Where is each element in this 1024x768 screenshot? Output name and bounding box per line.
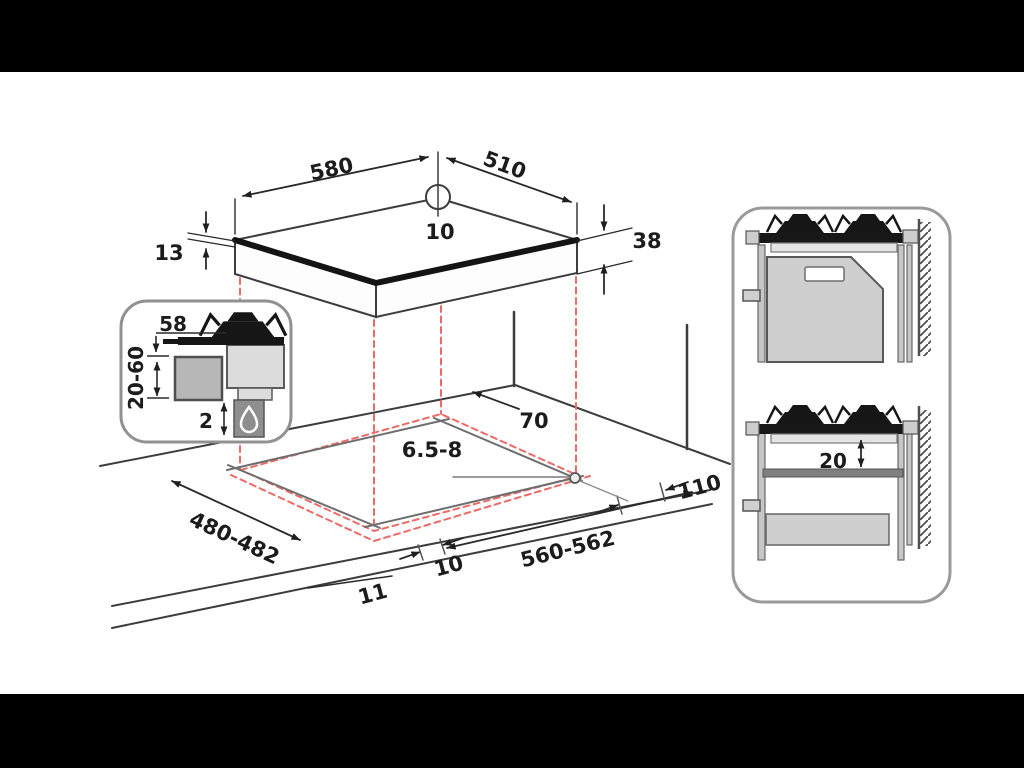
hob-underside-panel <box>771 243 897 252</box>
hob-height-label: 38 <box>632 229 661 253</box>
pipe-hole-marker <box>570 473 580 483</box>
clamp-left <box>746 231 759 244</box>
installation-diagram: 70 6.5-8 110 480-482 560-562 10 11 5 <box>0 0 1024 768</box>
gas-pipe-stub <box>743 290 760 301</box>
right-rail-2 <box>907 245 912 362</box>
wall-hatching-top <box>919 222 931 356</box>
installation-side-views: 20 <box>733 208 950 602</box>
inset-top-label: 58 <box>159 312 187 336</box>
inset-hob-surface <box>178 337 284 345</box>
inset-gap-label: 2 <box>199 409 213 433</box>
inset-cabinet-box <box>175 357 222 400</box>
clamp-right <box>903 421 918 434</box>
clamp-right <box>903 230 918 243</box>
inset-burner-body <box>227 345 284 388</box>
inset-hob-bar <box>163 339 178 344</box>
hole-diameter-label: 6.5-8 <box>402 438 463 462</box>
wall-hatching-bottom <box>919 410 931 546</box>
hob-edge-thickness-label: 13 <box>154 241 183 265</box>
rear-clearance-label: 70 <box>519 409 548 433</box>
hob-center-offset-label: 10 <box>425 220 454 244</box>
gas-pipe-stub <box>743 500 760 511</box>
left-rail <box>758 245 765 362</box>
inset-burner-neck <box>238 388 272 400</box>
left-rail <box>758 433 765 560</box>
side-view-no-gap <box>743 214 931 362</box>
hob-slab <box>752 233 916 243</box>
right-rail <box>898 433 904 560</box>
drawer-box <box>766 514 889 545</box>
right-rail <box>898 245 904 362</box>
shelf-gap-label: 20 <box>819 449 847 473</box>
hob-slab <box>752 424 916 434</box>
inset-range-label: 20-60 <box>124 346 148 410</box>
right-rail-2 <box>907 433 912 545</box>
vent-slot <box>805 267 844 281</box>
burner-detail-inset: 58 20-60 2 <box>121 301 291 442</box>
clamp-left <box>746 422 759 435</box>
hob-underside-panel <box>771 434 897 443</box>
